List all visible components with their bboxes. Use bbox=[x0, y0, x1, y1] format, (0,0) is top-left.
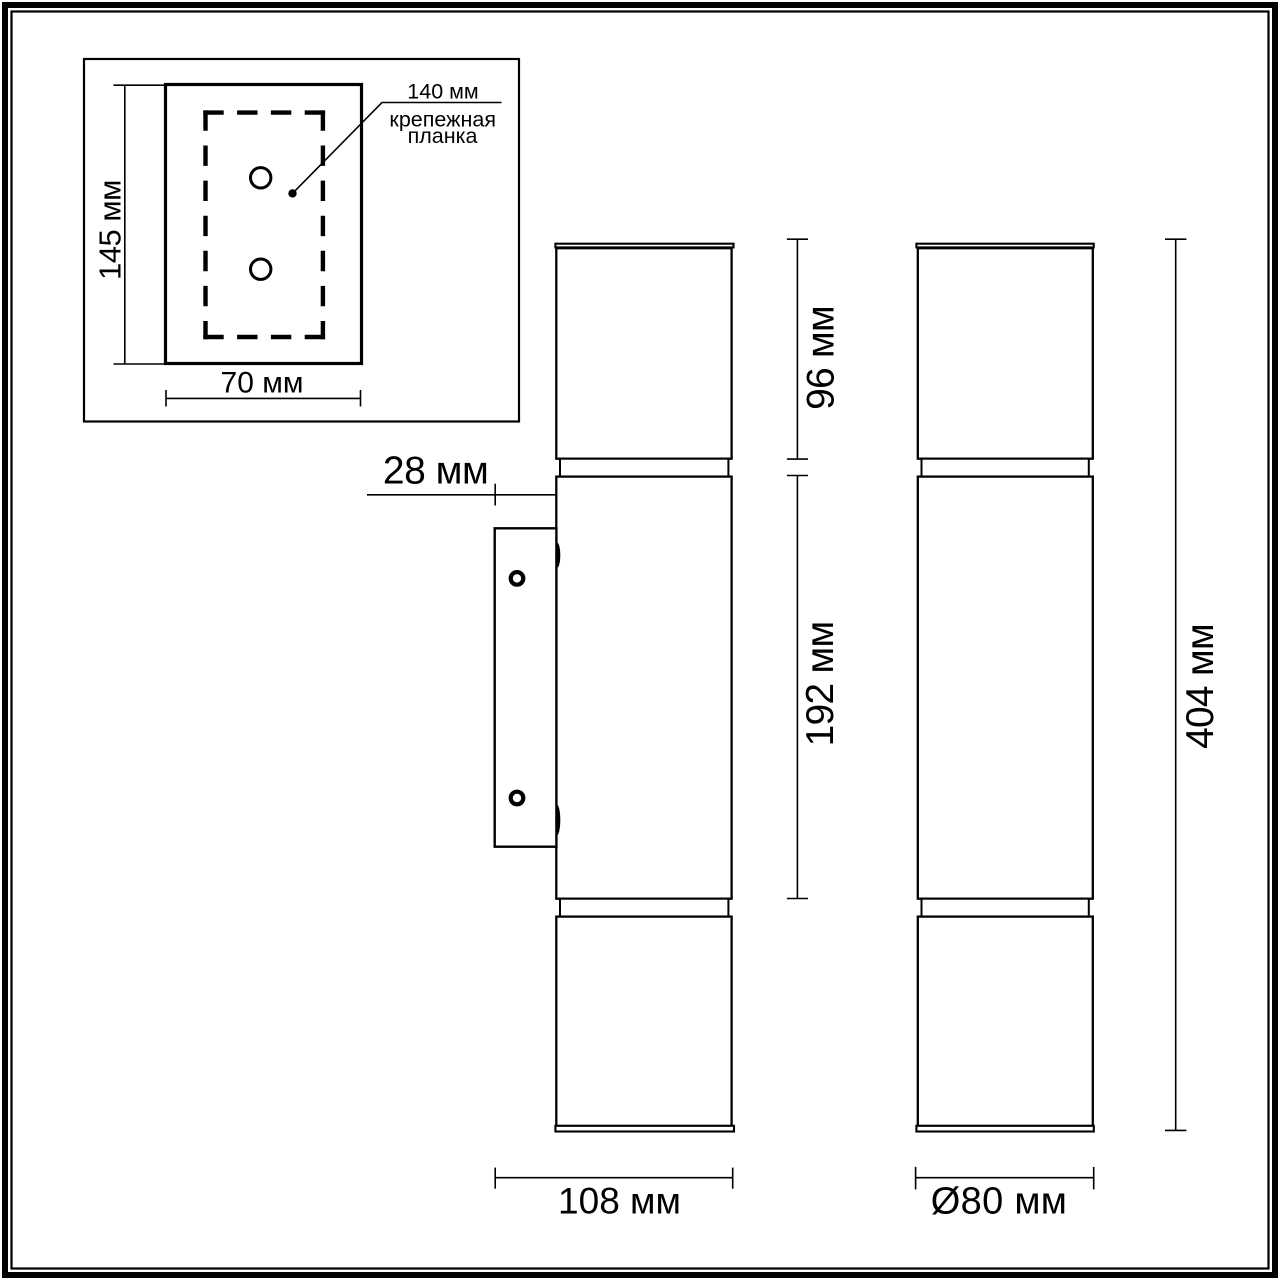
svg-text:140 мм: 140 мм bbox=[407, 80, 478, 104]
svg-text:70 мм: 70 мм bbox=[221, 367, 304, 400]
svg-text:28 мм: 28 мм bbox=[383, 450, 488, 493]
svg-text:108 мм: 108 мм bbox=[558, 1180, 681, 1221]
svg-text:192 мм: 192 мм bbox=[799, 622, 842, 747]
svg-text:145 мм: 145 мм bbox=[93, 180, 128, 280]
svg-text:404 мм: 404 мм bbox=[1179, 624, 1222, 749]
svg-text:планка: планка bbox=[408, 124, 478, 148]
svg-text:Ø80 мм: Ø80 мм bbox=[931, 1181, 1067, 1223]
svg-text:96 мм: 96 мм bbox=[800, 306, 843, 410]
